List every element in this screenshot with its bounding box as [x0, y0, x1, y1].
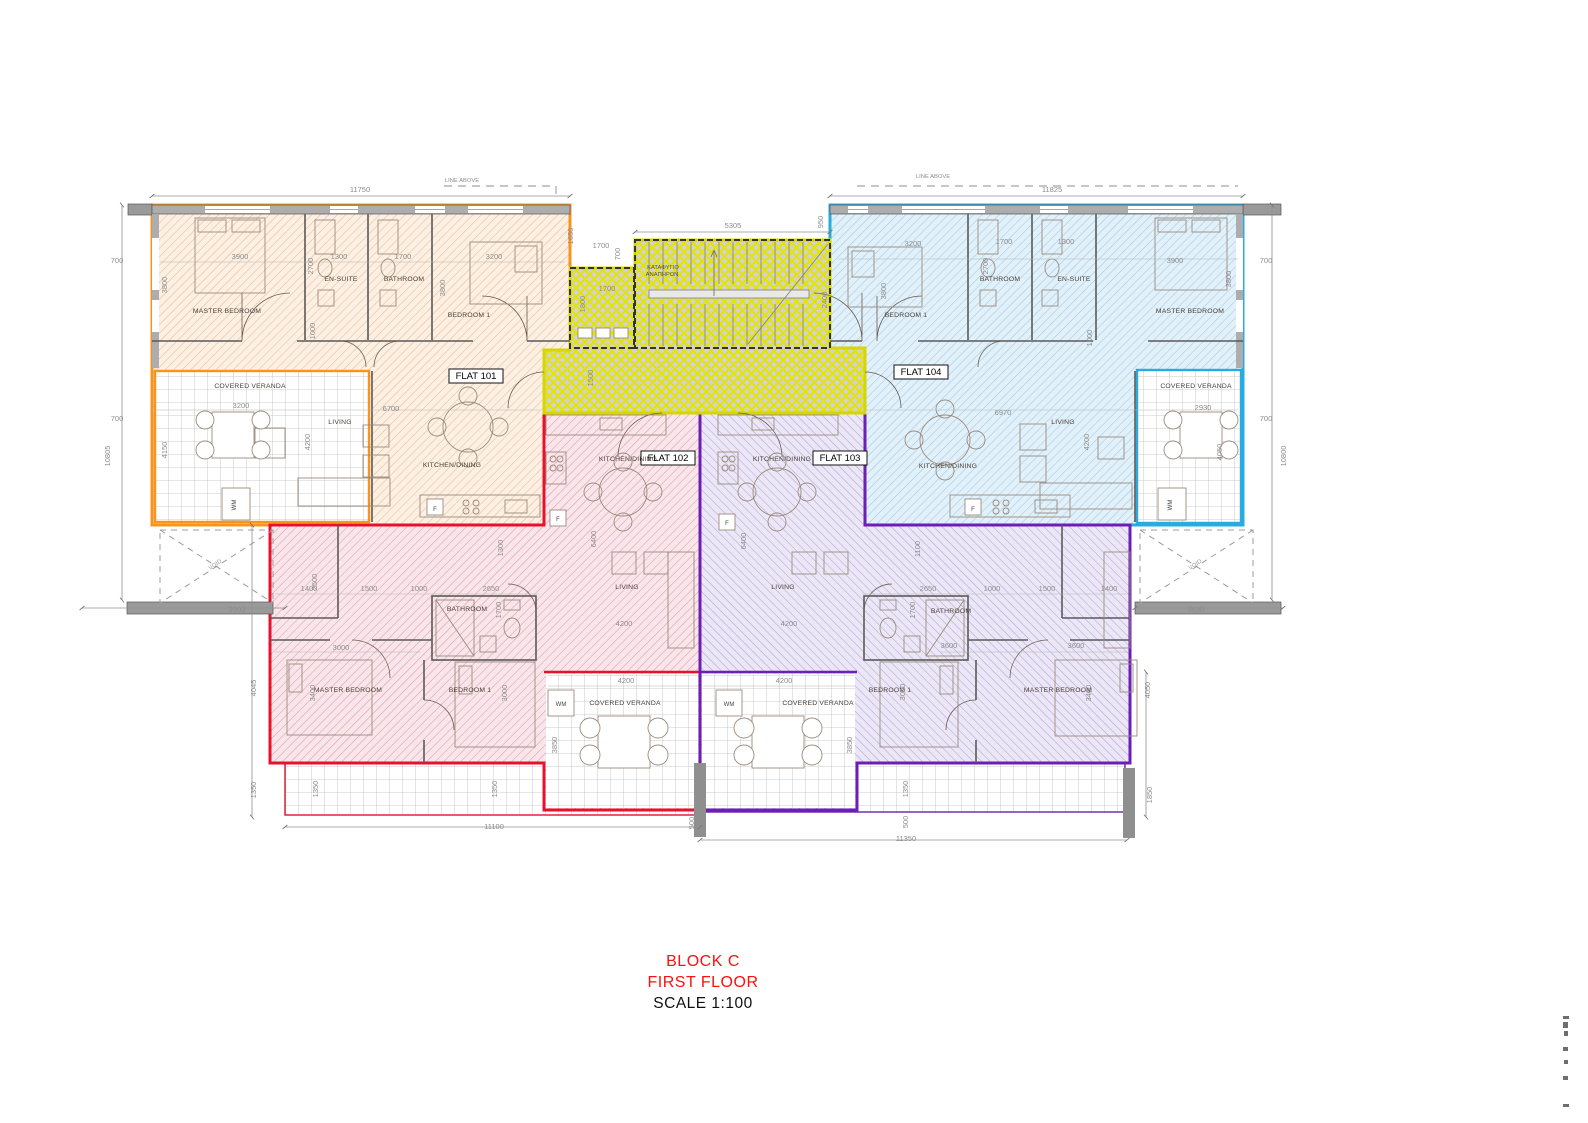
void-label: VOID — [208, 558, 224, 571]
dim-label: 6970 — [995, 408, 1012, 417]
dim-label: 1300 — [496, 540, 505, 557]
dim-label: 11100 — [484, 822, 504, 831]
dim-label: 4200 — [303, 434, 312, 451]
dim-label: 4200 — [618, 676, 635, 685]
flat-101-region — [152, 205, 570, 525]
room-label: MASTER BEDROOM — [193, 308, 261, 315]
dim-label: 3000 — [333, 643, 350, 652]
room-label: BEDROOM 1 — [885, 312, 928, 319]
dim-label: 3800 — [160, 277, 169, 294]
dim-label: 2930 — [1195, 403, 1212, 412]
dim-label: 4045 — [249, 680, 258, 697]
room-label: COVERED VERANDA — [214, 383, 286, 390]
dim-label: 2650 — [483, 584, 500, 593]
dim-label: 6400 — [589, 531, 598, 548]
room-label: LIVING — [1051, 419, 1075, 426]
sheet-edge-marks — [1563, 1016, 1569, 1107]
dim-label: 4050 — [1215, 444, 1224, 461]
room-label: EN-SUITE — [1057, 276, 1091, 283]
tag-label: FLAT 101 — [456, 371, 497, 382]
dim-label: 1000 — [1085, 330, 1094, 347]
dim-label: 1700 — [593, 241, 610, 250]
dim-label: 2650 — [920, 584, 937, 593]
dim-label: 3630 — [1188, 605, 1205, 614]
room-label: MASTER BEDROOM — [1156, 308, 1224, 315]
dim-label: 3800 — [1224, 271, 1233, 288]
title-block: BLOCK C FIRST FLOOR SCALE 1:100 — [648, 953, 759, 1012]
floor-plan-canvas: MASTER BEDROOMEN-SUITEBATHROOMBEDROOM 1C… — [0, 0, 1588, 1123]
dim-label: 1300 — [1058, 237, 1075, 246]
floor-plan-sheet: MASTER BEDROOMEN-SUITEBATHROOMBEDROOM 1C… — [0, 0, 1588, 1123]
dim-label: 4150 — [160, 442, 169, 459]
stair-handrail — [649, 290, 809, 298]
room-label: BEDROOM 1 — [448, 312, 491, 319]
dim-label: 700 — [1260, 256, 1273, 265]
dim-label: 3850 — [845, 737, 854, 754]
dim-label: 1700 — [908, 602, 917, 619]
dim-label: 4200 — [776, 676, 793, 685]
dim-label: 1700 — [494, 602, 503, 619]
flat-104-region — [830, 205, 1243, 525]
dim-label: 11825 — [1042, 185, 1062, 194]
dim-label: 1500 — [586, 370, 595, 387]
dim-label: 2700 — [306, 258, 315, 275]
dim-label: 3600 — [941, 641, 958, 650]
void-label: VOID — [1188, 558, 1204, 571]
app-label: WM — [556, 702, 567, 708]
dim-label: 10800 — [1279, 446, 1288, 467]
core-label: ΑΝΑΠΗΡΩΝ — [646, 272, 679, 278]
room-label: KITCHEN/DINING — [753, 456, 811, 463]
dim-label: 1350 — [901, 781, 910, 798]
dim-label: 2700 — [981, 258, 990, 275]
dim-label: 700 — [613, 248, 622, 261]
dim-label: 3900 — [229, 605, 246, 614]
room-label: KITCHEN/DINING — [423, 462, 481, 469]
dim-label: 3400 — [308, 685, 317, 702]
dim-label: 3200 — [905, 239, 922, 248]
room-label: COVERED VERANDA — [1160, 383, 1232, 390]
dim-label: 3800 — [879, 283, 888, 300]
dim-label: 500 — [687, 817, 696, 830]
dim-label: 1300 — [331, 252, 348, 261]
app-label: F — [725, 521, 729, 527]
dim-label: 10805 — [103, 446, 112, 467]
dim-label: 4200 — [781, 619, 798, 628]
dim-label: 3200 — [486, 252, 503, 261]
dim-label: 1000 — [984, 584, 1001, 593]
tag-label: FLAT 102 — [648, 453, 689, 464]
dim-label: 3400 — [1084, 685, 1093, 702]
dim-label: 2500 — [310, 574, 319, 591]
dim-label: 3900 — [1167, 256, 1184, 265]
room-label: BATHROOM — [931, 608, 972, 615]
dim-label: 6400 — [739, 533, 748, 550]
tag-label: FLAT 104 — [901, 367, 942, 378]
room-label: BATHROOM — [384, 276, 425, 283]
dim-label: 4200 — [616, 619, 633, 628]
dim-label: 3850 — [550, 737, 559, 754]
dim-label: 1850 — [1145, 787, 1154, 804]
dim-label: 700 — [1260, 414, 1273, 423]
dim-label: 4200 — [1082, 434, 1091, 451]
dim-label: 4050 — [1143, 682, 1152, 699]
dim-label: 1650 — [566, 228, 575, 245]
dim-label: 700 — [111, 414, 124, 423]
dim-label: 11350 — [896, 834, 916, 843]
dim-label: 1000 — [308, 323, 317, 340]
dim-label: 1350 — [490, 781, 499, 798]
room-label: COVERED VERANDA — [589, 700, 661, 707]
room-label: BATHROOM — [980, 276, 1021, 283]
small-label: LINE ABOVE — [916, 174, 950, 180]
app-label: WM — [1168, 500, 1174, 511]
tag-label: FLAT 103 — [820, 453, 861, 464]
core-label: ΚΑΤΑΦΥΓΙΟ — [647, 265, 679, 271]
scale-label: SCALE 1:100 — [653, 995, 752, 1012]
room-label: LIVING — [771, 584, 795, 591]
dim-label: 11750 — [350, 185, 370, 194]
app-label: F — [556, 517, 560, 523]
dim-label: 3900 — [232, 252, 249, 261]
dim-label: 1500 — [1039, 584, 1056, 593]
dim-label: 1800 — [578, 296, 587, 313]
room-label: EN-SUITE — [324, 276, 358, 283]
dim-label: 3200 — [233, 401, 250, 410]
room-label: MASTER BEDROOM — [314, 687, 382, 694]
room-label: LIVING — [615, 584, 639, 591]
dim-label: 3000 — [500, 685, 509, 702]
app-label: WM — [232, 500, 238, 511]
dim-label: 1400 — [1101, 584, 1118, 593]
room-label: BATHROOM — [447, 606, 488, 613]
room-label: MASTER BEDROOM — [1024, 687, 1092, 694]
dim-label: 1000 — [411, 584, 428, 593]
room-label: KITCHEN/DINING — [919, 463, 977, 470]
app-label: F — [971, 507, 975, 513]
floor-title: FIRST FLOOR — [648, 974, 759, 991]
dim-label: 5305 — [725, 221, 742, 230]
app-label: F — [433, 507, 437, 513]
dim-label: 2400 — [820, 292, 829, 309]
dim-label: 1350 — [311, 781, 320, 798]
small-label: LINE ABOVE — [445, 178, 479, 184]
room-label: COVERED VERANDA — [782, 700, 854, 707]
dim-label: 6700 — [383, 404, 400, 413]
dim-label: 3800 — [438, 280, 447, 297]
dim-label: 1700 — [599, 284, 616, 293]
lobby-bench — [578, 328, 628, 338]
room-label: LIVING — [328, 419, 352, 426]
dim-label: 500 — [901, 816, 910, 829]
dim-label: 3000 — [898, 684, 907, 701]
block-title: BLOCK C — [666, 953, 740, 970]
dim-label: 1700 — [996, 237, 1013, 246]
dim-label: 950 — [816, 216, 825, 229]
dim-label: 1500 — [361, 584, 378, 593]
room-label: BEDROOM 1 — [449, 687, 492, 694]
dim-label: 1350 — [249, 782, 258, 799]
dim-label: 700 — [111, 256, 124, 265]
dim-label: 1700 — [395, 252, 412, 261]
app-label: WM — [724, 702, 735, 708]
dim-label: 1100 — [913, 541, 922, 557]
dim-label: 3600 — [1068, 641, 1085, 650]
